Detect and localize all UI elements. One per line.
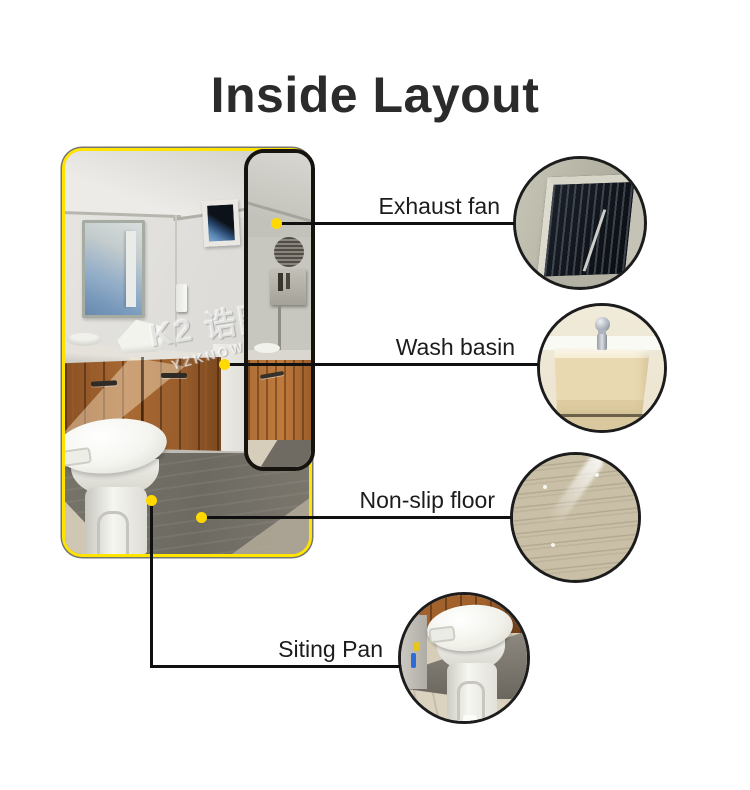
mirror-reflection-pole <box>278 305 281 351</box>
blue-fixture <box>411 653 416 668</box>
siting-pan-toilet <box>423 601 517 717</box>
faucet-base <box>597 334 607 350</box>
mirror-reflection-floor <box>248 440 311 467</box>
callout-label-siting-pan: Siting Pan <box>203 636 383 663</box>
callout-dot-exhaust-fan <box>271 218 282 229</box>
callout-circle-exhaust-fan <box>513 156 647 290</box>
mirror-panel <box>244 149 315 471</box>
wash-basin-bowl <box>552 348 652 414</box>
callout-circle-siting-pan <box>398 592 530 724</box>
toilet-pedal <box>97 511 129 554</box>
mirror-reflection-rug <box>261 440 315 467</box>
callout-dot-wash-basin <box>219 359 230 370</box>
callout-circle-wash-basin <box>537 303 667 433</box>
toilet-pedestal <box>85 487 147 554</box>
callout-line-non-slip-floor <box>201 516 511 519</box>
callout-line-wash-basin <box>225 363 538 366</box>
callout-line-exhaust-fan <box>276 222 514 225</box>
yellow-fixture <box>413 642 420 651</box>
mirror-reflection-door <box>126 231 136 307</box>
toilet-lid-latch <box>428 625 456 643</box>
exhaust-vent-grille <box>274 237 304 267</box>
floor-texture <box>513 455 638 580</box>
bathroom-mirror <box>82 220 145 318</box>
mirror-reflection-dispenser <box>270 269 306 305</box>
counter-front <box>540 417 664 433</box>
floor-speckle <box>551 543 555 547</box>
page: Inside Layout <box>0 0 750 790</box>
exhaust-fan-frame <box>536 173 647 288</box>
toilet <box>62 419 179 554</box>
callout-label-exhaust-fan: Exhaust fan <box>320 193 500 220</box>
exhaust-fan-louvers <box>544 182 634 276</box>
floor-speckle <box>543 485 547 489</box>
mirror-reflection-towel <box>254 343 280 353</box>
callout-dot-siting-pan <box>146 495 157 506</box>
toilet-foot <box>463 715 477 723</box>
floor-speckle <box>595 473 599 477</box>
page-title: Inside Layout <box>0 66 750 124</box>
toilet-pedestal <box>447 663 497 721</box>
callout-label-non-slip-floor: Non-slip floor <box>315 487 495 514</box>
callout-circle-non-slip-floor <box>510 452 641 583</box>
callout-line-siting-pan-vertical <box>150 500 153 668</box>
callout-line-siting-pan-horizontal <box>150 665 400 668</box>
callout-dot-non-slip-floor <box>196 512 207 523</box>
bathroom-window <box>202 199 240 247</box>
dispenser-slot <box>286 273 290 289</box>
counter-towel <box>67 333 101 346</box>
dispenser-slot <box>278 273 283 291</box>
callout-label-wash-basin: Wash basin <box>335 334 515 361</box>
